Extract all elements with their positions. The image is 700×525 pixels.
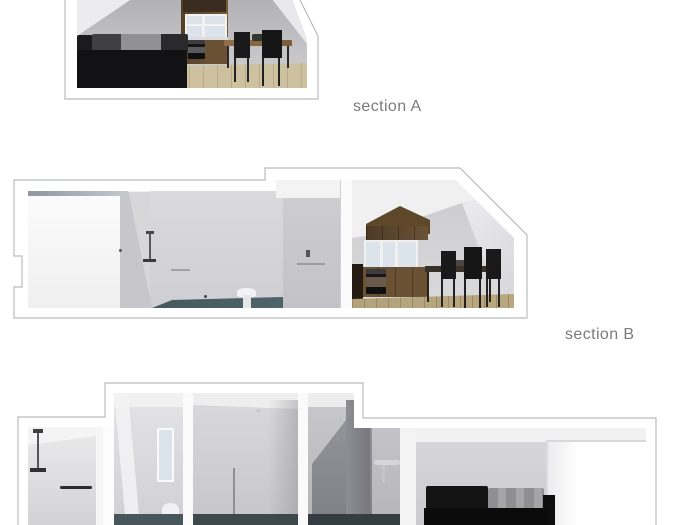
hallway-wall (283, 198, 340, 308)
canvas: section A section B (0, 0, 700, 525)
shower-mixer (143, 259, 156, 262)
bathroom-floor-c (114, 514, 183, 525)
washbasin-pedestal (243, 295, 251, 308)
kitchen-upper-cabinets-b (366, 226, 428, 240)
wall-outlet (204, 295, 207, 298)
shower-pipe (37, 433, 39, 469)
dividing-wall (103, 427, 114, 525)
dining-table-b (425, 266, 493, 272)
section-a-label: section A (353, 98, 422, 116)
hallway-ceiling (276, 180, 340, 198)
dining-chair-b (441, 251, 456, 307)
section-wall-cut (340, 180, 352, 308)
shower-mixer (30, 468, 46, 472)
bathroom-wall (150, 190, 283, 308)
dining-chair (262, 30, 282, 86)
handrail (374, 460, 400, 465)
section-b-label: section B (565, 326, 634, 344)
wall-hook (119, 249, 122, 252)
sofa-seat (77, 50, 187, 88)
stair-room-floor (308, 514, 412, 525)
table-leg (287, 46, 289, 68)
hallway-shelf (297, 263, 325, 265)
dining-chair-b (486, 249, 501, 307)
thermostat (306, 250, 310, 257)
shower-glass-panel (28, 196, 122, 308)
dividing-wall (183, 393, 193, 525)
table-leg-b (427, 272, 429, 302)
oven (188, 40, 205, 59)
dividing-wall (298, 393, 308, 525)
towel-bar (60, 486, 92, 489)
oven-b (366, 269, 386, 294)
dining-chair-b (464, 247, 482, 309)
empty-room-floor (193, 514, 298, 525)
room-shading (268, 400, 298, 525)
ceiling-lamp-icon (256, 409, 261, 412)
shower-pipe (149, 234, 151, 260)
kitchen-upper-cabinets (183, 0, 226, 12)
dividing-wall (400, 428, 416, 525)
sofa-c-seat (424, 508, 548, 525)
bathroom-shelf (171, 269, 190, 271)
bathroom-window (157, 428, 174, 482)
table-leg (227, 46, 229, 68)
bright-wall (546, 440, 648, 525)
dining-chair (234, 32, 250, 82)
handrail-post (382, 465, 385, 483)
wall-edge (96, 427, 103, 525)
